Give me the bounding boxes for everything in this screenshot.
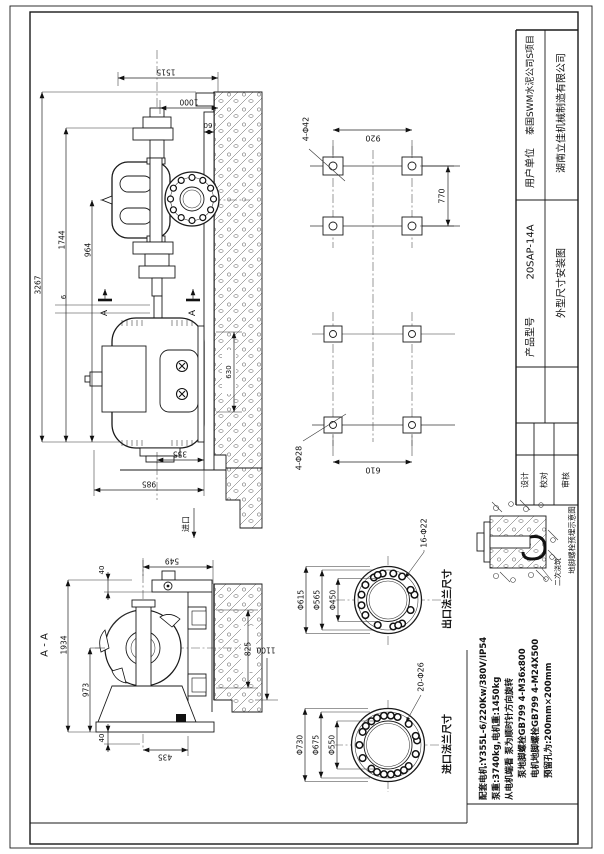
dim-973: 973 — [82, 683, 91, 698]
label-4xd42: 4-Φ42 — [302, 117, 311, 141]
model-value: 20SAP-14A — [526, 224, 537, 279]
dim-549: 549 — [165, 557, 180, 566]
dim-3267: 3267 — [34, 275, 43, 294]
dim-d730: Φ730 — [296, 735, 305, 755]
dim-770: 770 — [438, 188, 447, 203]
dim-40-top: 40 — [98, 566, 106, 575]
motor-anchor-pads — [324, 326, 421, 433]
dim-1744: 1744 — [58, 230, 67, 249]
title-block: 泰国SWM水泥公司S项目 用户单位 湖南立佳机械制造有限公司 20SAP-14A… — [516, 30, 578, 505]
foundation-plan-dimensions: 920 770 610 4-Φ42 4-Φ28 — [295, 117, 455, 475]
inlet-label: 进口 — [182, 516, 191, 532]
label-16xd22: 16-Φ22 — [420, 518, 429, 548]
model-label: 产品型号 — [524, 317, 537, 357]
section-letter-a1: A — [100, 309, 110, 316]
dim-355: 355 — [173, 450, 188, 459]
outlet-flange-caption: 出口法兰尺寸 — [441, 569, 454, 629]
dim-825: 825 — [244, 642, 253, 657]
outlet-flange-view: Φ615 Φ565 Φ450 16-Φ22 出口法兰尺寸 — [297, 518, 454, 646]
dim-610: 610 — [365, 466, 380, 475]
dim-d450: Φ450 — [329, 590, 338, 610]
spec-notes: 配套电机:Y355L-6/220Kw/380V/IP54 泵重:3740kg,电… — [478, 637, 554, 800]
dim-d615: Φ615 — [297, 590, 306, 610]
note-motor-bolts: 电机地脚螺栓GB799 4-M24X500 — [530, 639, 541, 778]
grout-label: 二次浇筑 — [553, 558, 562, 586]
dim-1515: 1515 — [156, 68, 175, 77]
dim-985: 985 — [142, 480, 157, 489]
dim-920: 920 — [365, 134, 380, 143]
dim-435: 435 — [158, 753, 173, 762]
section-title: A - A — [40, 633, 51, 657]
dim-1934: 1934 — [60, 635, 69, 654]
pump-anchor-pads — [323, 157, 422, 235]
client-label: 用户单位 — [524, 148, 537, 188]
sign-role-check: 校对 — [539, 472, 549, 488]
dim-1100: 1100 — [256, 646, 275, 655]
dim-630: 630 — [225, 365, 233, 378]
dim-60: 60 — [204, 121, 213, 129]
label-4xd28: 4-Φ28 — [295, 446, 304, 470]
note-rotation: 从电机端看 泵为顺时针方向旋转 — [504, 678, 515, 800]
drawing-title: 外型尺寸安装图 — [555, 248, 568, 318]
section-a-a-view: A - A 进口 — [40, 508, 279, 762]
note-motor: 配套电机:Y355L-6/220Kw/380V/IP54 — [478, 637, 489, 800]
section-letter-a2: A — [188, 309, 198, 316]
company-name: 湖南立佳机械制造有限公司 — [555, 53, 568, 173]
note-weights: 泵重:3740kg,电机重:1450kg — [491, 677, 502, 800]
discharge-flange — [165, 172, 219, 226]
dim-964: 964 — [84, 243, 93, 258]
dim-6: 6 — [60, 294, 68, 299]
anchor-bolt-detail: 二次浇筑 地脚螺栓预埋示意图 — [477, 500, 577, 586]
dim-1000: 1000 — [179, 98, 198, 107]
dim-d675: Φ675 — [312, 735, 321, 755]
pump-unit-side-view: A A — [34, 50, 263, 528]
section-cut-marks: A A — [98, 289, 200, 316]
sign-role-review: 审核 — [561, 472, 571, 488]
drawing-sheet: 泰国SWM水泥公司S项目 用户单位 湖南立佳机械制造有限公司 20SAP-14A… — [0, 0, 604, 854]
note-holes: 预留孔为:200mm×200mm — [543, 662, 554, 778]
motor — [85, 318, 204, 462]
inlet-flange-caption: 进口法兰尺寸 — [441, 714, 454, 774]
dim-40-bottom: 40 — [98, 734, 106, 743]
dim-d565: Φ565 — [313, 590, 322, 610]
client-value: 泰国SWM水泥公司S项目 — [524, 35, 536, 135]
anchor-detail-caption: 地脚螺栓预埋示意图 — [567, 506, 577, 574]
inlet-flange-view: Φ730 Φ675 Φ550 20-Φ26 进口法兰尺寸 — [296, 662, 454, 792]
label-20xd26: 20-Φ26 — [417, 662, 426, 692]
dim-d550: Φ550 — [328, 735, 337, 755]
sign-role-design: 设计 — [520, 472, 530, 488]
foundation-plan-view: 920 770 610 4-Φ42 4-Φ28 — [295, 117, 461, 475]
note-pump-bolts: 泵地脚螺栓GB799 4-M36x800 — [517, 648, 528, 778]
